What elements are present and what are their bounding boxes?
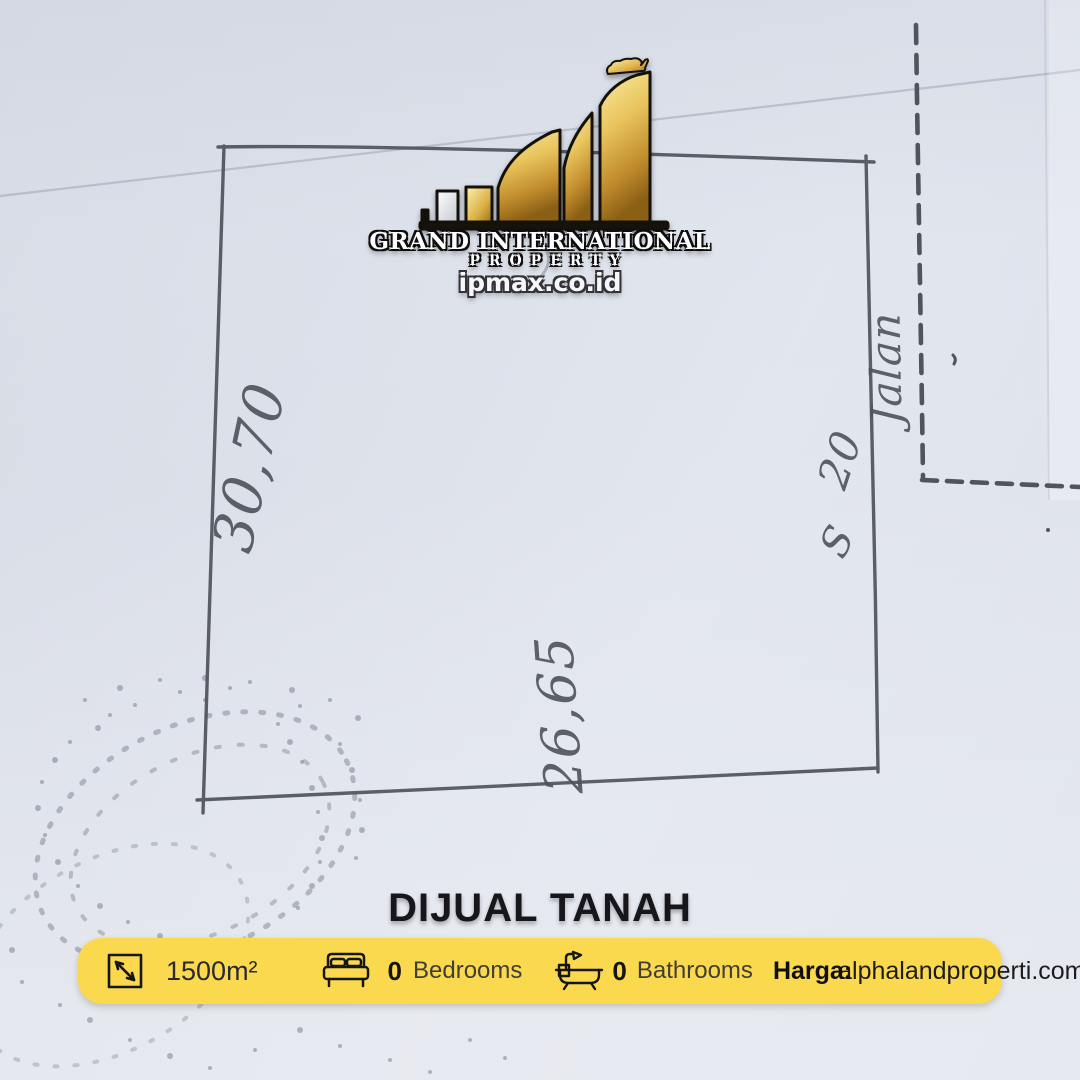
stamp-mark [0, 661, 507, 1080]
brand-name: GRAND INTERNATIONAL [0, 228, 1080, 255]
logo-bar-5 [600, 72, 650, 223]
stamp-speckles [9, 675, 507, 1074]
bathrooms-label: Bathrooms [637, 957, 753, 985]
bathtub-icon [554, 950, 604, 992]
logo-bar-2 [466, 187, 492, 223]
area-value: 1500m² [166, 956, 258, 987]
lion-icon [607, 58, 648, 74]
bedrooms-count: 0 [388, 956, 402, 987]
bathrooms-count: 0 [612, 956, 626, 987]
brand-website-link[interactable]: ipmax.co.id [0, 268, 1080, 297]
dimension-bottom: 26,65 [524, 635, 595, 793]
area-icon [106, 952, 144, 990]
info-bar: 1500m² 0 Bedrooms 0 Bathrooms Harga: alp… [78, 938, 1002, 1004]
brand-subtitle: PROPERTY [0, 253, 1080, 269]
property-poster: 30,70 26,65 20 S Jalan [0, 0, 1080, 1080]
rising-bars-one-icon [415, 46, 675, 231]
listing-title: DIJUAL TANAH [0, 886, 1080, 931]
logo-bar-4 [564, 113, 592, 223]
logo-bar-1 [437, 191, 458, 223]
bed-icon [320, 951, 372, 991]
logo-bar-3 [498, 130, 560, 223]
road-label: Jalan [860, 311, 911, 426]
agency-website-link[interactable]: alphalandproperti.com [838, 957, 1080, 986]
price-label: Harga: [773, 957, 852, 986]
bedrooms-label: Bedrooms [413, 957, 522, 985]
